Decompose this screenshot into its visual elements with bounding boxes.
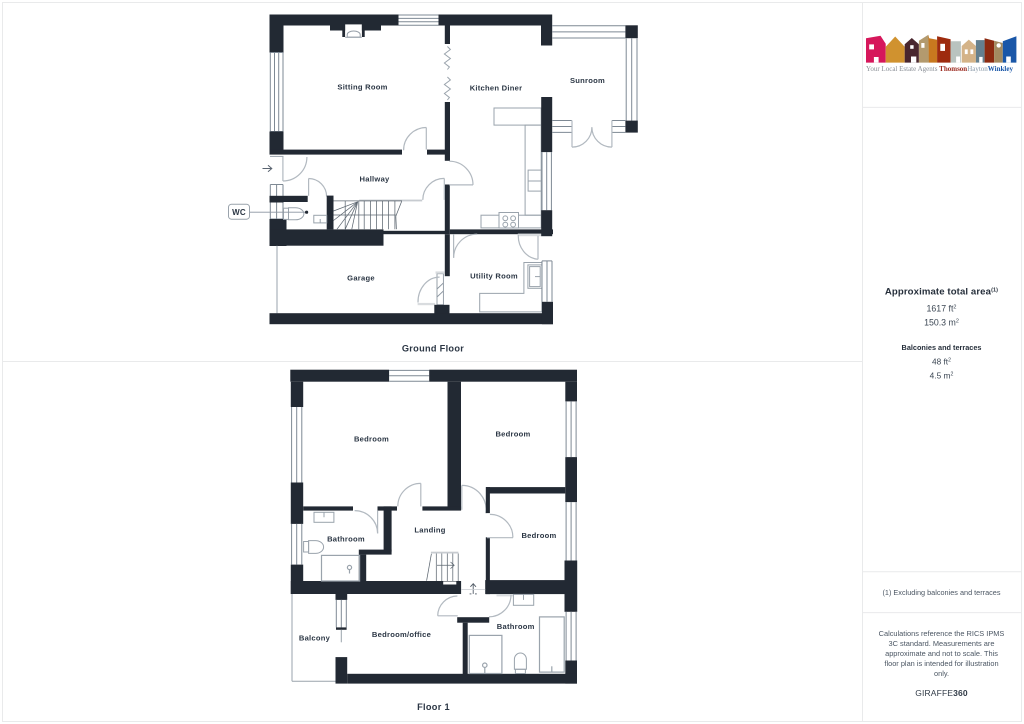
svg-text:Balconies and terraces: Balconies and terraces: [902, 343, 982, 352]
svg-text:GIRAFFE360: GIRAFFE360: [915, 688, 968, 698]
svg-text:Bedroom: Bedroom: [354, 435, 389, 444]
svg-text:4.5 m2: 4.5 m2: [930, 371, 954, 381]
svg-text:Utility Room: Utility Room: [470, 272, 518, 281]
svg-text:Hallway: Hallway: [359, 175, 390, 184]
svg-text:Balcony: Balcony: [299, 634, 331, 643]
svg-text:floor plan is intended for ill: floor plan is intended for illustration: [884, 659, 998, 668]
svg-text:only.: only.: [934, 669, 949, 678]
svg-text:Approximate total area(1): Approximate total area(1): [885, 286, 998, 297]
svg-text:Ground Floor: Ground Floor: [402, 344, 464, 354]
svg-text:Garage: Garage: [347, 274, 375, 283]
svg-text:Kitchen Diner: Kitchen Diner: [470, 84, 523, 93]
svg-text:Sunroom: Sunroom: [570, 76, 605, 85]
svg-text:Bedroom/office: Bedroom/office: [372, 630, 431, 639]
svg-text:Landing: Landing: [414, 526, 445, 535]
svg-text:approximate and not to scale.: approximate and not to scale. This: [885, 649, 998, 658]
svg-text:Bathroom: Bathroom: [327, 535, 365, 544]
svg-text:Sitting Room: Sitting Room: [337, 83, 387, 92]
svg-text:Bedroom: Bedroom: [521, 531, 556, 540]
svg-text:Bedroom: Bedroom: [495, 430, 530, 439]
svg-text:3C standard. Measurements are: 3C standard. Measurements are: [889, 639, 995, 648]
svg-text:WC: WC: [232, 208, 246, 217]
svg-text:Calculations reference the RIC: Calculations reference the RICS IPMS: [879, 629, 1005, 638]
svg-text:Floor 1: Floor 1: [417, 702, 450, 712]
svg-text:1617 ft2: 1617 ft2: [927, 304, 957, 314]
svg-text:Bathroom: Bathroom: [497, 622, 535, 631]
svg-text:(1) Excluding balconies and te: (1) Excluding balconies and terraces: [882, 588, 1000, 597]
svg-text:150.3 m2: 150.3 m2: [924, 318, 959, 328]
svg-text:Your Local Estate Agents Thoms: Your Local Estate Agents ThomsonHaytonWi…: [866, 65, 1013, 73]
